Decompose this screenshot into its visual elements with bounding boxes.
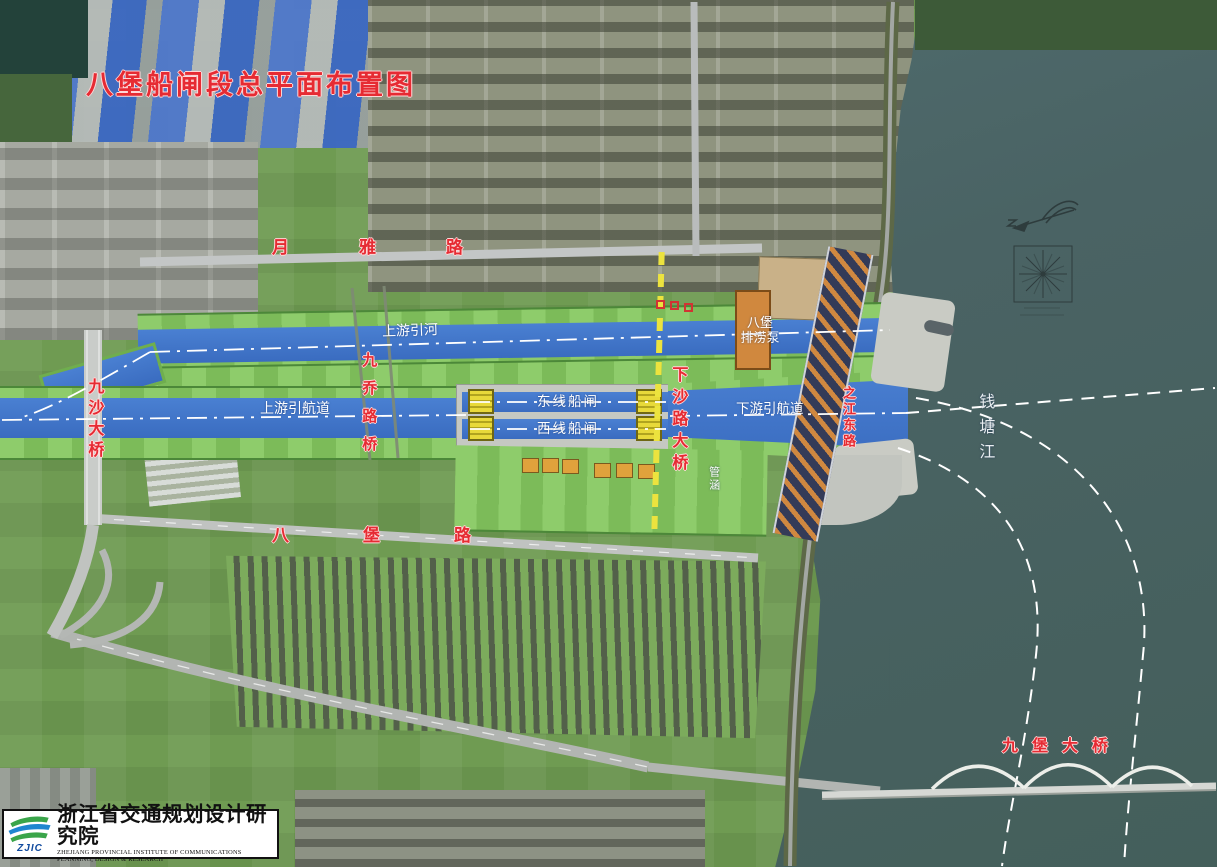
label-babu-road: 八堡路 bbox=[272, 526, 545, 546]
label-upstream-river: 上游引河 bbox=[382, 321, 439, 339]
institute-name-zh: 浙江省交通规划设计研究院 bbox=[57, 805, 273, 848]
label-jiubao-bridge: 九堡大桥 bbox=[1002, 738, 1122, 756]
label-jiusha-bridge: 九沙大桥 bbox=[84, 378, 102, 462]
label-west-lock: 西线船闸 bbox=[537, 421, 599, 437]
label-jiuqiao-bridge: 九乔路桥 bbox=[360, 352, 377, 464]
upstream-approach-water bbox=[0, 398, 470, 438]
red-marker bbox=[670, 301, 679, 310]
label-qiantang-river: 钱塘江 bbox=[975, 393, 993, 468]
urban-blocks-west bbox=[0, 142, 258, 340]
label-pump-line2: 排涝泵 bbox=[732, 331, 788, 346]
label-zhijiang-east-road: 之江东路 bbox=[840, 386, 855, 450]
lock-south-lawn bbox=[454, 445, 767, 536]
dark-roof-block bbox=[0, 0, 88, 78]
site-plan-map: 八堡船闸段总平面布置图 月雅路 八堡路 九堡大桥 九沙大桥 九乔路桥 下沙路大桥… bbox=[0, 0, 1217, 867]
lock-building bbox=[594, 463, 611, 478]
lock-gate bbox=[468, 389, 494, 414]
river-pier-north bbox=[870, 291, 956, 392]
institute-name-en: ZHEJIANG PROVINCIAL INSTITUTE OF COMMUNI… bbox=[57, 849, 273, 863]
lock-gate bbox=[468, 416, 494, 441]
tree-cape-north bbox=[915, 0, 1217, 50]
label-pump-station: 八堡 排涝泵 bbox=[732, 316, 788, 346]
institute-logo: ZJIC bbox=[8, 815, 52, 854]
red-marker bbox=[684, 303, 693, 312]
red-marker bbox=[656, 300, 665, 309]
label-culvert: 管涵 bbox=[707, 466, 720, 492]
logo-acronym: ZJIC bbox=[17, 843, 43, 854]
green-block bbox=[0, 74, 72, 146]
lock-building bbox=[562, 459, 579, 474]
zjic-swoosh-icon bbox=[8, 815, 52, 843]
page-title: 八堡船闸段总平面布置图 bbox=[86, 70, 416, 101]
label-upstream-channel: 上游引航道 bbox=[260, 400, 330, 416]
label-downstream-channel: 下游引航道 bbox=[736, 401, 804, 417]
label-pump-line1: 八堡 bbox=[732, 316, 788, 331]
lock-building bbox=[522, 458, 539, 473]
lock-building bbox=[616, 463, 633, 478]
institute-name-block: 浙江省交通规划设计研究院 ZHEJIANG PROVINCIAL INSTITU… bbox=[57, 805, 273, 863]
label-east-lock: 东线船闸 bbox=[537, 394, 599, 410]
label-yueya-road: 月雅路 bbox=[272, 238, 533, 258]
institute-logo-box: ZJIC 浙江省交通规划设计研究院 ZHEJIANG PROVINCIAL IN… bbox=[2, 809, 279, 859]
row-housing-south bbox=[226, 552, 766, 742]
urban-blocks-south bbox=[295, 790, 705, 867]
interchange-ramps bbox=[60, 550, 160, 645]
label-xiasha-bridge: 下沙路大桥 bbox=[668, 366, 686, 476]
lock-building bbox=[542, 458, 559, 473]
